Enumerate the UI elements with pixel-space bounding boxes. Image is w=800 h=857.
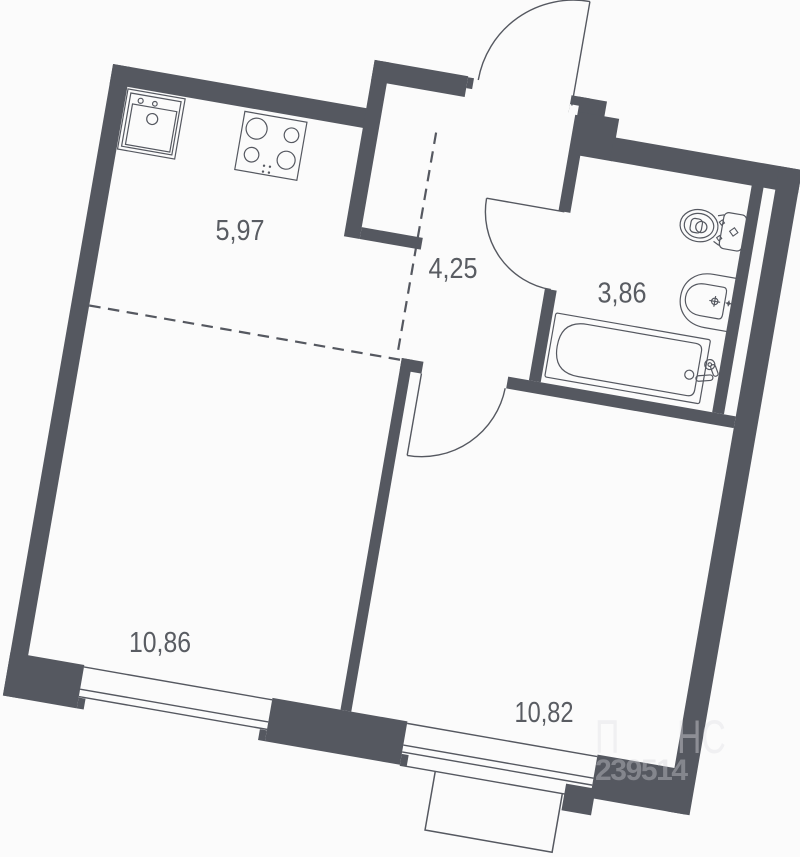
svg-text:10,86: 10,86 bbox=[129, 627, 191, 659]
svg-text:239514: 239514 bbox=[595, 754, 688, 787]
svg-text:5,97: 5,97 bbox=[216, 215, 265, 247]
svg-text:3,86: 3,86 bbox=[598, 278, 647, 310]
svg-text:10,82: 10,82 bbox=[515, 697, 574, 729]
svg-text:4,25: 4,25 bbox=[429, 253, 478, 285]
